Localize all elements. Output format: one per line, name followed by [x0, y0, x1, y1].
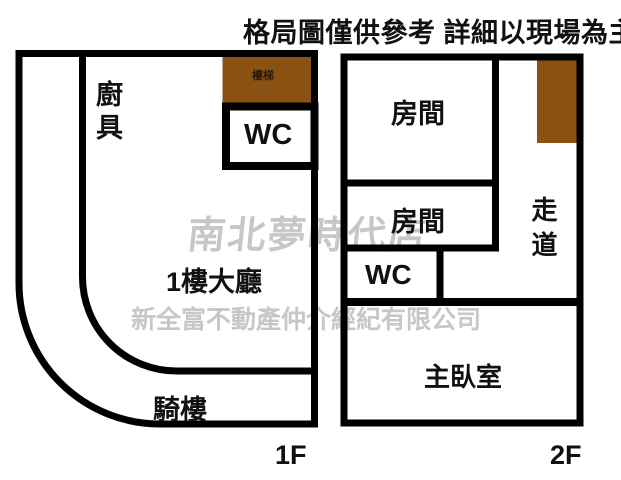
room-label-wc-1f: WC — [244, 119, 292, 152]
disclaimer-title: 格局圖僅供參考 詳細以現場為主 — [243, 11, 621, 50]
room-label-wc-2f: WC — [365, 259, 412, 291]
floor-label-2f: 2F — [550, 440, 582, 471]
room-label-stairs-1f: 樓梯 — [252, 67, 274, 83]
room-label-master-bedroom: 主臥室 — [424, 357, 502, 394]
floor2-stairs-area — [537, 60, 577, 143]
room-label-hall: 1樓大廳 — [166, 260, 262, 299]
floor-label-1f: 1F — [275, 440, 307, 471]
room-label-corridor: 走道 — [525, 196, 562, 266]
room-label-room-top: 房間 — [391, 92, 445, 131]
room-label-kitchen: 廚具 — [88, 80, 127, 146]
room-label-room-mid: 房間 — [391, 200, 445, 239]
room-label-arcade: 騎樓 — [153, 388, 207, 427]
floor-plan-canvas: 格局圖僅供參考 詳細以現場為主 南北夢時代店 新全富不動產仲介經紀有限公司 廚具… — [0, 0, 621, 480]
